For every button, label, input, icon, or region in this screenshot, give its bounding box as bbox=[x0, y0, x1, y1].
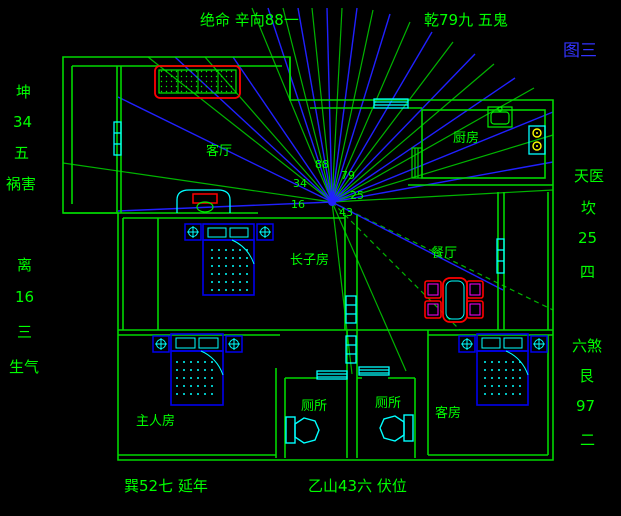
bed-guest bbox=[459, 334, 547, 405]
center-number-16: 16 bbox=[291, 199, 305, 211]
label-kan: 坎 bbox=[581, 200, 596, 217]
room-label-guest: 客房 bbox=[435, 407, 461, 421]
windows bbox=[114, 99, 504, 379]
room-label-master: 主人房 bbox=[136, 415, 175, 429]
label-er: 二 bbox=[580, 432, 595, 449]
label-san: 三 bbox=[17, 324, 32, 341]
label-gen: 艮 bbox=[579, 368, 594, 385]
room-label-living: 客厅 bbox=[206, 145, 232, 159]
center-number-79: 79 bbox=[341, 170, 355, 182]
label-kun: 坤 bbox=[16, 84, 31, 101]
label-liusha: 六煞 bbox=[572, 338, 602, 355]
dining-table-set bbox=[425, 278, 483, 322]
label-direction-bottom-left: 巽52七 延年 bbox=[124, 478, 208, 495]
window-toilet-left bbox=[317, 371, 347, 379]
compass-rays bbox=[63, 8, 553, 374]
label-shengqi: 生气 bbox=[9, 359, 39, 376]
room-label-dining: 餐厅 bbox=[431, 247, 457, 261]
label-direction-top-left: 绝命 辛向88一 bbox=[200, 12, 299, 29]
label-wu: 五 bbox=[14, 145, 29, 162]
label-li-16: 16 bbox=[15, 289, 34, 306]
label-gen-97: 97 bbox=[576, 398, 595, 415]
compass-center bbox=[328, 198, 336, 206]
label-tianyi: 天医 bbox=[574, 168, 604, 185]
window-corridor-1 bbox=[346, 296, 356, 323]
label-direction-bottom-right: 乙山43六 伏位 bbox=[308, 478, 407, 495]
label-direction-top-right: 乾79九 五鬼 bbox=[424, 12, 508, 29]
bed-eldest-son bbox=[185, 224, 273, 295]
label-huohai: 祸害 bbox=[6, 176, 36, 193]
room-label-toilet-left: 厕所 bbox=[301, 400, 327, 414]
toilet-left-fixture bbox=[286, 417, 319, 443]
label-kan-25: 25 bbox=[578, 230, 597, 247]
dresser bbox=[177, 190, 230, 213]
room-label-eldest-son: 长子房 bbox=[290, 254, 329, 268]
label-kun-34: 34 bbox=[13, 114, 32, 131]
room-label-kitchen: 厨房 bbox=[453, 132, 479, 146]
label-li: 离 bbox=[17, 257, 32, 274]
toilet-right-fixture bbox=[380, 415, 413, 441]
figure-title: 图三 bbox=[563, 42, 597, 61]
room-label-toilet-right: 厕所 bbox=[375, 397, 401, 411]
label-si: 四 bbox=[580, 264, 595, 281]
center-number-43: 43 bbox=[339, 207, 353, 219]
window-toilet-right bbox=[359, 367, 389, 375]
sofa bbox=[155, 66, 240, 98]
center-number-25: 25 bbox=[350, 190, 364, 202]
center-number-34: 34 bbox=[293, 178, 307, 190]
center-number-88: 88 bbox=[315, 159, 329, 171]
fengshui-floorplan-figure: 绝命 辛向88一 乾79九 五鬼 图三 坤 34 五 祸害 离 16 三 生气 … bbox=[0, 0, 621, 516]
bed-master bbox=[153, 334, 242, 405]
